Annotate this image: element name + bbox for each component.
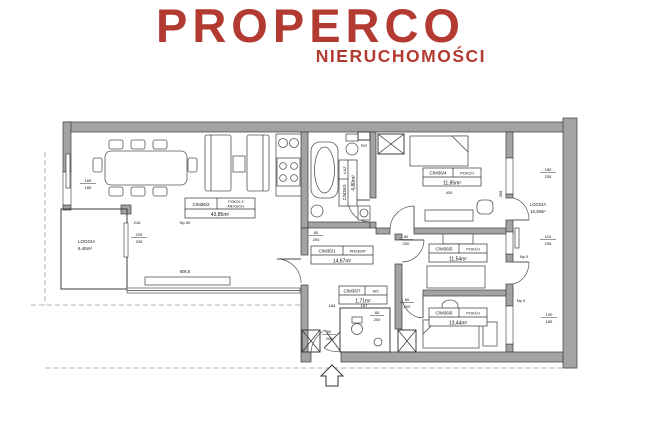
room-area: 11,85m² xyxy=(443,181,461,187)
window-dim-180-235: 180 235 xyxy=(540,167,556,179)
washbasin xyxy=(311,205,323,217)
room-name: POKÓJ xyxy=(466,247,480,252)
room-name: POKÓJ xyxy=(466,311,480,316)
room-name: POKÓJ Z xyxy=(228,199,244,204)
level-mark-np0: Np 0 xyxy=(517,298,526,303)
label-room-6: C/M36/6 POKÓJ 13,44m² xyxy=(429,308,487,327)
floor-plan: LOGGIA 6,46m² LOGGIA 10,38m² xyxy=(25,110,630,420)
loggia-right: LOGGIA 10,38m² xyxy=(515,202,546,248)
room-area: 11,54m² xyxy=(449,257,467,263)
label-room-hall: C/M36/1 PRZEDP. 14,67m² xyxy=(311,246,373,265)
label-room-living: C/M36/2 POKÓJ Z AN.KUCH. 43,85m² xyxy=(185,198,255,218)
label-room-5: C/M36/5 POKÓJ 11,54m² xyxy=(429,244,487,263)
window-dim-190-185: 190 185 xyxy=(541,312,557,324)
dim-216: 216 xyxy=(134,220,141,225)
window-dim-165-185: 165 185 xyxy=(80,178,96,190)
room-area: 13,44m² xyxy=(449,321,468,327)
rg-label: RG xyxy=(361,143,367,148)
toilet-icon xyxy=(346,143,358,155)
room-id: C/M36/4 xyxy=(429,171,447,176)
desk xyxy=(425,210,473,221)
room-id: C/M36/7 xyxy=(343,289,361,294)
room-area: 4,80m² xyxy=(351,175,357,191)
stove xyxy=(277,158,300,186)
washbasin xyxy=(374,338,382,346)
brand-tagline: NIERUCHOMOŚCI xyxy=(156,46,486,67)
dim-bottom: 200 xyxy=(326,336,333,341)
room-id: C/M36/3 xyxy=(342,184,347,200)
dim-bottom: 200 xyxy=(313,237,320,242)
bed xyxy=(427,266,485,288)
dim-top: 110 xyxy=(545,234,552,239)
dining-table xyxy=(93,140,197,196)
dim-bottom: 235 xyxy=(545,241,552,246)
label-room-wc: C/M36/7 WC 1,71m² xyxy=(339,286,387,304)
room-id: C/M36/1 xyxy=(318,249,336,254)
room-id: C/M36/2 xyxy=(192,202,210,207)
armchair xyxy=(477,200,493,214)
sink-bowl xyxy=(279,139,288,148)
dim-top: 90 xyxy=(327,329,332,334)
radiator xyxy=(66,154,70,188)
loggia-left-name: LOGGIA xyxy=(78,239,95,244)
dim-bottom: 200 xyxy=(403,241,410,246)
loggia-right-area: 10,38m² xyxy=(530,209,546,214)
loggia-left-area: 6,46m² xyxy=(78,246,93,251)
dim-bottom: 200 xyxy=(374,317,381,322)
dim-167: 167 xyxy=(361,303,368,308)
toilet-tank xyxy=(352,317,362,323)
label-room-bath: C/M36/3 ŁAZ. 4,80m² xyxy=(339,160,357,206)
dim-top: 80 xyxy=(405,297,410,302)
dim-top: 165 xyxy=(85,178,92,183)
toilet-icon xyxy=(352,324,363,335)
sofa-set xyxy=(205,135,269,191)
dim-top: 190 xyxy=(546,312,553,317)
wc xyxy=(340,308,390,352)
dim-top: 80 xyxy=(375,310,380,315)
radiator xyxy=(515,228,519,248)
sink-bowl xyxy=(290,139,299,148)
room-name: ŁAZ. xyxy=(342,165,347,173)
toilet-tank xyxy=(346,134,358,141)
dim-top: 180 xyxy=(545,167,552,172)
dim-bottom: 235 xyxy=(545,174,552,179)
room-name: PRZEDP. xyxy=(350,249,367,254)
dim-358: 358 xyxy=(498,190,503,197)
room-id: C/M36/6 xyxy=(435,311,453,316)
room-area: 43,85m² xyxy=(211,212,230,218)
level-mark-np0: Np 0 xyxy=(520,254,529,259)
level-mark-np50: Np 50 xyxy=(180,220,191,225)
room-name: AN.KUCH. xyxy=(227,205,244,209)
dim-top: 80 xyxy=(314,230,319,235)
window-dim-110-235: 110 235 xyxy=(540,234,556,246)
loggia-right-name: LOGGIA xyxy=(530,202,546,207)
room-name: POKÓJ xyxy=(460,171,474,176)
dim-living-width: 608,5 xyxy=(180,269,191,274)
room-area: 14,67m² xyxy=(333,259,352,265)
loggia-left: LOGGIA 6,46m² xyxy=(61,209,128,289)
dim-top: 80 xyxy=(404,234,409,239)
door-dim-80-200: 80 200 xyxy=(309,230,323,242)
kitchen xyxy=(276,134,301,196)
room-id: C/M36/5 xyxy=(435,247,453,252)
room-name: WC xyxy=(373,289,380,294)
rg-cabinet xyxy=(358,132,370,140)
vent-shaft xyxy=(398,330,416,352)
desk xyxy=(443,234,473,244)
dim-430: 430 xyxy=(446,190,453,195)
dim-bottom: 185 xyxy=(546,319,553,324)
label-room-4: C/M36/4 POKÓJ 11,85m² xyxy=(423,168,481,187)
sideboard xyxy=(145,277,230,285)
dim-top: 225 xyxy=(136,232,143,237)
entrance-arrow-icon xyxy=(321,365,343,386)
window-dim-225-235: 225 235 xyxy=(131,232,147,244)
dim-184: 184 xyxy=(329,303,336,308)
floorplan-page: PROPERCO NIERUCHOMOŚCI xyxy=(0,0,654,447)
dim-bottom: 185 xyxy=(85,185,92,190)
door-dim-80-200: 80 200 xyxy=(370,310,384,322)
dim-bottom: 200 xyxy=(404,304,411,309)
dim-bottom: 235 xyxy=(136,239,143,244)
